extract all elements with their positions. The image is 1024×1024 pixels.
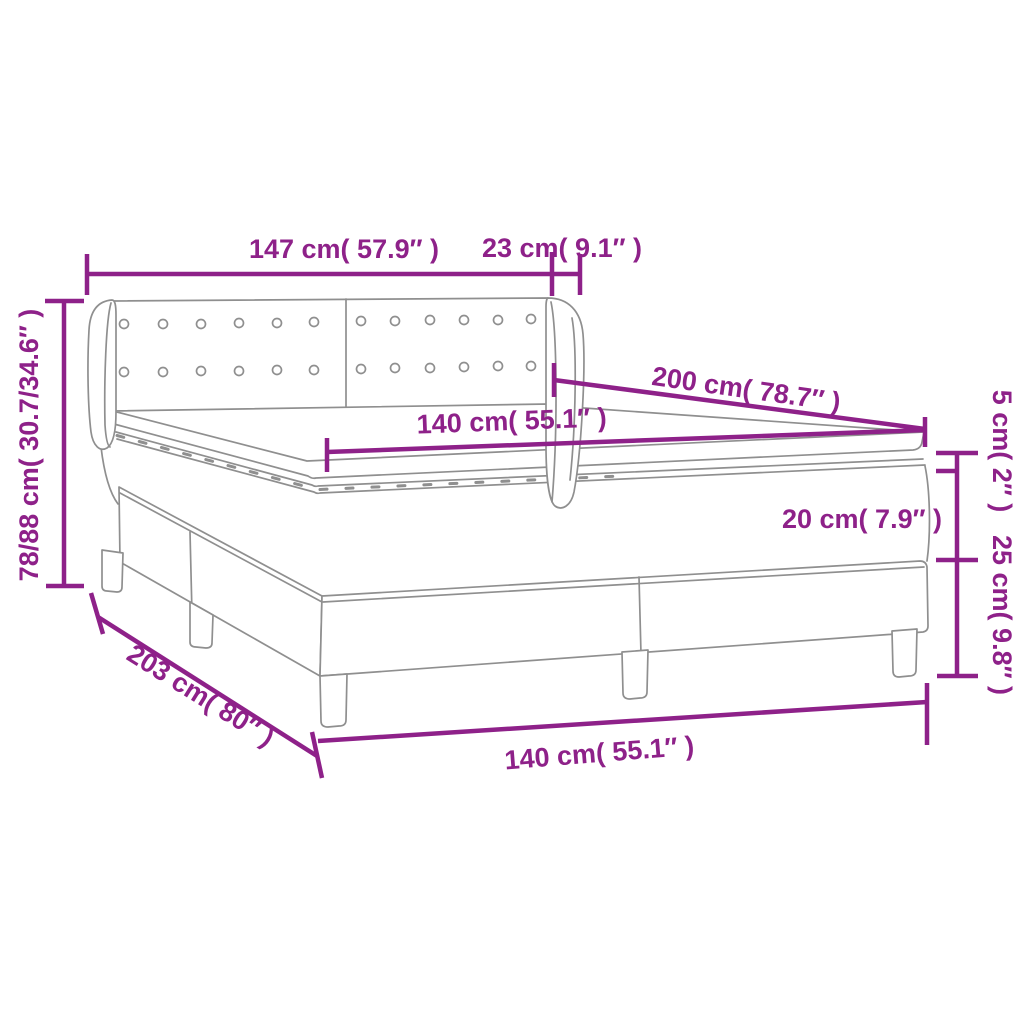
label-topper-thickness: 5 cm( 2″ ) xyxy=(987,390,1017,512)
leg-front-right xyxy=(892,629,917,677)
dim-right-stack-lines xyxy=(936,453,978,676)
headboard-post xyxy=(101,447,118,504)
dimension-diagram: 147 cm( 57.9″ ) 23 cm( 9.1″ ) 78/88 cm( … xyxy=(0,0,1024,1024)
label-wing-depth: 23 cm( 9.1″ ) xyxy=(482,233,642,263)
leg-front-left xyxy=(320,674,347,727)
label-headboard-height: 78/88 cm( 30.7/34.6″ ) xyxy=(14,309,44,582)
label-base-width: 140 cm( 55.1″ ) xyxy=(503,731,695,776)
headboard-panel xyxy=(113,298,548,412)
leg-back-left xyxy=(102,550,123,592)
label-mattress-thickness: 20 cm( 7.9″ ) xyxy=(782,504,942,534)
bed-dimension-drawing: 147 cm( 57.9″ ) 23 cm( 9.1″ ) 78/88 cm( … xyxy=(0,0,1024,1024)
label-base-height: 25 cm( 9.8″ ) xyxy=(987,535,1017,695)
label-headboard-width: 147 cm( 57.9″ ) xyxy=(249,234,439,264)
label-overall-length: 203 cm( 80″ ) xyxy=(122,638,280,752)
dim-headboard-height-lines xyxy=(45,301,84,586)
headboard-wing-left xyxy=(88,300,116,449)
label-bed-length: 200 cm( 78.7″ ) xyxy=(650,361,842,417)
leg-front-middle xyxy=(622,650,648,699)
